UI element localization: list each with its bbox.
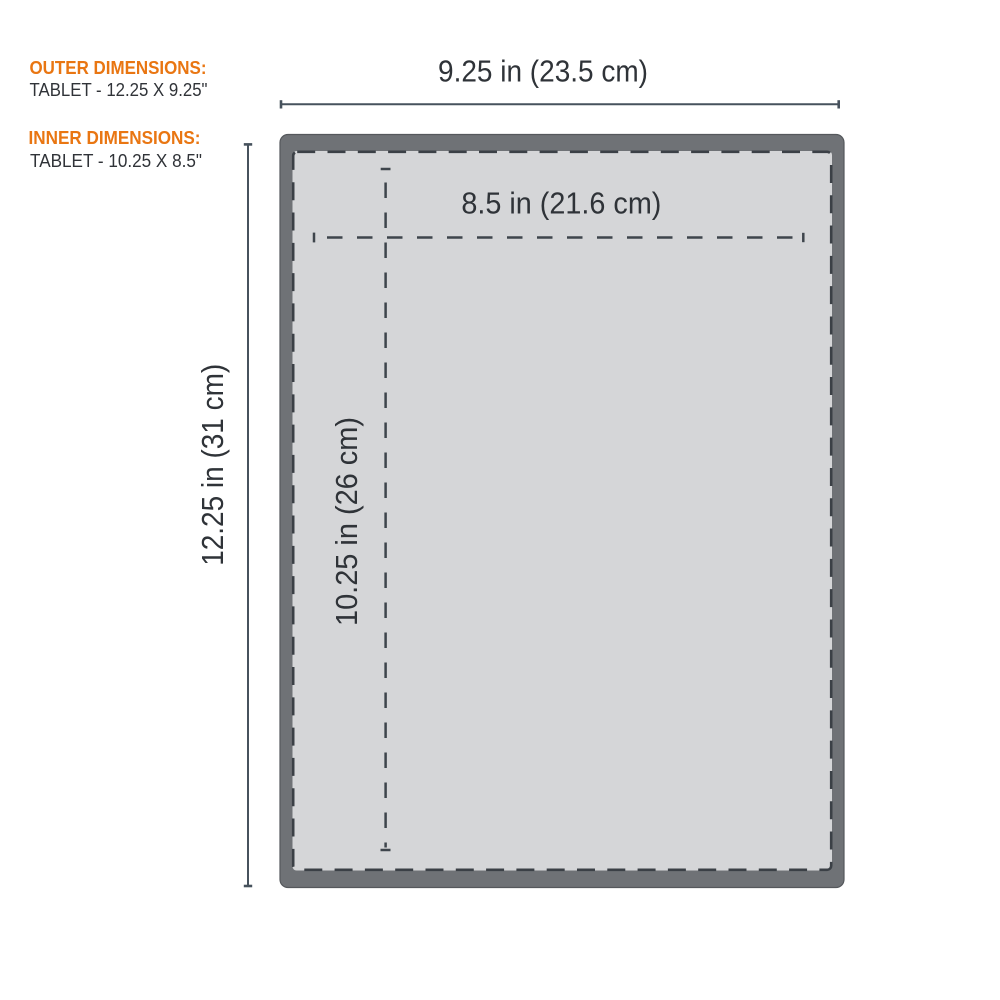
svg-text:TABLET - 12.25 X 9.25": TABLET - 12.25 X 9.25" [30,80,208,100]
svg-text:12.25 in (31 cm): 12.25 in (31 cm) [195,364,230,566]
svg-text:10.25 in (26 cm): 10.25 in (26 cm) [329,417,364,626]
svg-text:INNER DIMENSIONS:: INNER DIMENSIONS: [29,128,201,148]
svg-text:TABLET - 10.25 X 8.5": TABLET - 10.25 X 8.5" [30,151,202,171]
svg-text:OUTER DIMENSIONS:: OUTER DIMENSIONS: [30,58,207,78]
svg-text:8.5 in (21.6 cm): 8.5 in (21.6 cm) [461,185,661,220]
svg-text:9.25 in (23.5 cm): 9.25 in (23.5 cm) [438,54,648,89]
